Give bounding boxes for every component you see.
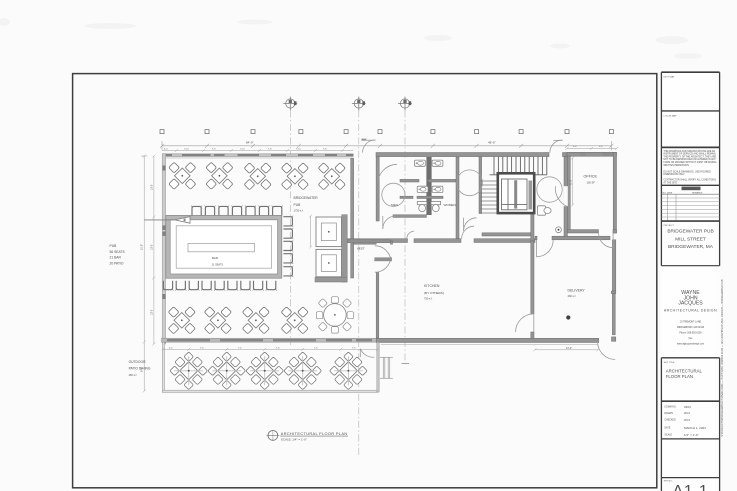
svg-text:THE PROPERTY OF THE ARCHITECT.: THE PROPERTY OF THE ARCHITECT. THEY ARE <box>663 155 716 158</box>
svg-text:21 SEATS: 21 SEATS <box>212 263 224 266</box>
svg-text:Phone: 508-555-0156: Phone: 508-555-0156 <box>679 332 702 334</box>
svg-text:ARCHITECTURAL: ARCHITECTURAL <box>666 368 703 373</box>
svg-text:WRITTEN PERMISSION.: WRITTEN PERMISSION. <box>663 165 690 167</box>
svg-text:BAR: BAR <box>212 256 218 260</box>
svg-text:KEY PLAN: KEY PLAN <box>664 76 675 79</box>
svg-text:10'-0: 10'-0 <box>150 244 153 250</box>
svg-text:A1.1: A1.1 <box>672 483 708 491</box>
svg-text:(BY OTHERS): (BY OTHERS) <box>424 291 444 295</box>
svg-text:ARCHITECTURAL FLOOR PLAN: ARCHITECTURAL FLOOR PLAN <box>281 431 348 436</box>
svg-text:BRIDGEWATER: BRIDGEWATER <box>294 196 319 200</box>
svg-text:BRIDGEWATER, MA: BRIDGEWATER, MA <box>668 244 714 250</box>
svg-text:CONTRACTOR SHALL VERIFY ALL CO: CONTRACTOR SHALL VERIFY ALL CONDITIONS <box>663 179 716 182</box>
svg-text:www.wjjacquesdesign.com: www.wjjacquesdesign.com <box>677 343 704 345</box>
svg-text:56 SEATS: 56 SEATS <box>110 250 126 254</box>
svg-text:OFFICE: OFFICE <box>584 175 598 179</box>
svg-text:SHT TITLE: SHT TITLE <box>664 362 675 364</box>
svg-text:WOMEN: WOMEN <box>444 203 456 207</box>
svg-text:FLOOR PLAN: FLOOR PLAN <box>666 374 693 379</box>
svg-text:10'-0: 10'-0 <box>150 309 153 315</box>
svg-text:NO. DATE: NO. DATE <box>663 191 673 194</box>
svg-text:1/4" = 1'-0": 1/4" = 1'-0" <box>684 433 699 437</box>
svg-text:460 s.f.: 460 s.f. <box>568 294 577 298</box>
svg-text:SCALE: SCALE <box>664 434 672 437</box>
svg-text:WJJ: WJJ <box>684 418 690 422</box>
svg-text:20 PATIO: 20 PATIO <box>110 261 124 265</box>
svg-text:48'-0": 48'-0" <box>488 141 496 145</box>
svg-text:PUB: PUB <box>294 203 302 207</box>
svg-text:VEST.: VEST. <box>357 246 366 250</box>
svg-text:MEN: MEN <box>391 203 398 207</box>
svg-text:REMARKS: REMARKS <box>692 191 703 194</box>
svg-text:FORM OR MANNER WITHOUT FIRST O: FORM OR MANNER WITHOUT FIRST OBTAINING <box>663 161 716 164</box>
svg-text:21'-0": 21'-0" <box>566 347 572 350</box>
svg-text:OUTDOOR: OUTDOOR <box>129 360 146 364</box>
svg-text:PROJECT: PROJECT <box>664 225 675 227</box>
svg-text:SHT NO.: SHT NO. <box>664 481 673 483</box>
svg-text:ARCHITECTURAL DESIGN: ARCHITECTURAL DESIGN <box>664 309 717 313</box>
svg-text:JACQUES: JACQUES <box>678 301 703 307</box>
svg-text:SCALE: 1/4" = 1'-0": SCALE: 1/4" = 1'-0" <box>281 438 307 442</box>
svg-text:WJJ: WJJ <box>684 411 690 415</box>
svg-text:NOT TO BE REPRODUCED OR ALTERE: NOT TO BE REPRODUCED OR ALTERED IN ANY <box>663 158 716 161</box>
svg-text:AT THE SITE.: AT THE SITE. <box>663 181 678 184</box>
svg-text:BRIDGEWATER PUB: BRIDGEWATER PUB <box>667 229 713 235</box>
svg-text:84'-0": 84'-0" <box>246 141 254 145</box>
svg-text:MIDDLEBORO, MA 02346: MIDDLEBORO, MA 02346 <box>677 326 705 329</box>
svg-text:INSTRUMENT OF SERVICE AND SHAL: INSTRUMENT OF SERVICE AND SHALL REMAIN <box>663 153 716 156</box>
svg-text:21 BAR: 21 BAR <box>110 256 122 260</box>
svg-text:31'-0": 31'-0" <box>141 244 144 250</box>
svg-text:0304: 0304 <box>684 405 691 409</box>
svg-text:LOCUS MAP: LOCUS MAP <box>664 114 677 117</box>
svg-text:DO NOT SCALE DRAWINGS. USE FIG: DO NOT SCALE DRAWINGS. USE FIGURED <box>663 170 711 173</box>
svg-text:750 s.f.: 750 s.f. <box>424 297 433 301</box>
svg-text:KITCHEN: KITCHEN <box>424 284 440 288</box>
svg-text:PATIO DINING: PATIO DINING <box>129 367 151 371</box>
svg-text:15 TREMONT LANE: 15 TREMONT LANE <box>680 320 702 323</box>
svg-text:460 s.f.: 460 s.f. <box>129 373 138 377</box>
svg-text:DIMENSIONS ONLY.: DIMENSIONS ONLY. <box>663 174 685 176</box>
svg-text:REVISIONS: REVISIONS <box>683 188 696 191</box>
svg-text:MILL STREET: MILL STREET <box>675 237 706 243</box>
svg-text:THE DRAWINGS AND SPECIFICATION: THE DRAWINGS AND SPECIFICATIONS ARE AN <box>663 150 715 153</box>
svg-text:11'-2: 11'-2 <box>570 179 572 185</box>
svg-text:1750 s.f.: 1750 s.f. <box>294 208 304 212</box>
svg-text:DATE: DATE <box>664 427 670 430</box>
svg-text:COMM NO.: COMM NO. <box>664 407 676 409</box>
svg-text:DELIVERY: DELIVERY <box>568 288 586 292</box>
svg-text:DRAWN: DRAWN <box>664 412 673 415</box>
svg-text:MARCH 1, 2004: MARCH 1, 2004 <box>684 426 706 430</box>
svg-text:CHECKED: CHECKED <box>664 420 676 422</box>
svg-text:160 SF: 160 SF <box>587 181 596 185</box>
svg-text:10'-0: 10'-0 <box>150 184 153 190</box>
svg-text:PUB: PUB <box>110 244 118 248</box>
svg-text:S:\PROJECTS\BRIDGEWATER PUB\A1: S:\PROJECTS\BRIDGEWATER PUB\A11.DWG — PL… <box>721 279 724 436</box>
